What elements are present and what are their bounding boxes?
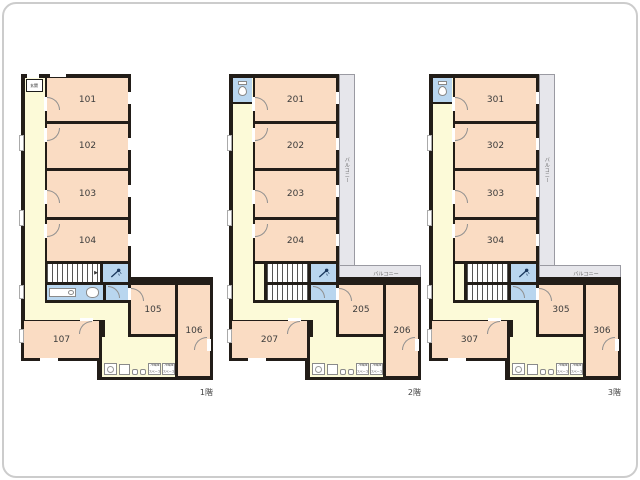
balcony-door-gap [336, 234, 339, 246]
window [227, 285, 232, 299]
floor-plan-2f: バルコニー バルコニー 201 202 203 204 207 [226, 73, 426, 403]
corridor [433, 78, 453, 320]
toilet-room [233, 78, 252, 104]
floor-plan-1f: 玄関 101 102 103 104 ▶ 107 105 106 [18, 73, 218, 403]
room-206: 206 [386, 285, 418, 376]
toilet-room [433, 78, 452, 104]
balcony-door-gap [536, 138, 539, 150]
corridor [433, 303, 536, 320]
burner-icon [540, 369, 546, 375]
window [19, 210, 24, 226]
fridge-space-label: 冷蔵庫スペース [556, 363, 569, 375]
entrance-box: 玄関 [26, 79, 43, 92]
corridor [233, 78, 253, 320]
floor-label: 1階 [168, 387, 213, 398]
burner-icon [348, 369, 354, 375]
shower-room [103, 264, 128, 282]
toilet-icon [86, 287, 99, 298]
door-gap [615, 339, 619, 351]
room-number: 206 [386, 285, 418, 376]
room-number: 303 [455, 171, 536, 217]
fridge-space-label: 冷蔵庫スペース [356, 363, 369, 375]
stairs-up [267, 264, 308, 282]
stair-landing [455, 264, 464, 300]
stairs: ▶ [47, 264, 100, 282]
kitchen-sink-icon [527, 364, 538, 375]
room-203: 203 [255, 171, 336, 217]
room-number: 106 [178, 285, 210, 376]
window [19, 135, 24, 151]
burner-icon [548, 369, 554, 375]
stairs-down [267, 285, 308, 300]
window [227, 210, 232, 226]
fridge-space-label: 冷蔵庫スペース [162, 363, 175, 375]
window [50, 74, 66, 77]
stair-landing [255, 264, 264, 300]
room-201: 201 [255, 78, 336, 121]
window [128, 234, 131, 246]
corridor [233, 303, 336, 320]
balcony-door-gap [336, 138, 339, 150]
window [19, 329, 24, 343]
corridor [313, 320, 336, 337]
burner-icon [132, 369, 138, 375]
door-gap [415, 339, 419, 351]
room-number: 306 [586, 285, 618, 376]
fridge-space-label: 冷蔵庫スペース [570, 363, 583, 375]
room-number: 203 [255, 171, 336, 217]
window [19, 285, 24, 299]
window [128, 92, 131, 104]
room-number: 201 [255, 78, 336, 121]
balcony-label: バルコニー [543, 157, 551, 183]
window [128, 185, 131, 197]
sink-icon [68, 290, 74, 295]
corridor [25, 303, 128, 320]
window [427, 210, 432, 226]
door-gap [207, 339, 211, 351]
washing-machine-icon [104, 363, 117, 375]
window [128, 138, 131, 150]
fridge-space-label: 冷蔵庫スペース [370, 363, 383, 375]
toilet-icon [233, 81, 252, 96]
window [227, 329, 232, 343]
floor-plan-3f: バルコニー バルコニー 301 302 303 304 307 [426, 73, 626, 403]
balcony-door-gap [536, 185, 539, 197]
entrance-label: 玄関 [31, 83, 39, 89]
shower-icon [311, 264, 336, 282]
corridor [513, 320, 536, 337]
stairs-up [467, 264, 508, 282]
shower-room [311, 264, 336, 282]
room-number: 101 [47, 78, 128, 121]
balcony-door-gap [336, 185, 339, 197]
corridor [105, 320, 128, 337]
burner-icon [340, 369, 346, 375]
window [227, 135, 232, 151]
balcony-door-gap [536, 234, 539, 246]
shower-icon [511, 264, 536, 282]
balcony-door-gap [536, 92, 539, 104]
floor-label: 2階 [376, 387, 421, 398]
room-101: 101 [47, 78, 128, 121]
kitchen-sink-icon [119, 364, 130, 375]
window [427, 329, 432, 343]
stairs-down [467, 285, 508, 300]
room-106: 106 [178, 285, 210, 376]
toilet-icon [433, 81, 452, 96]
shower-room [511, 264, 536, 282]
window [248, 358, 266, 361]
room-303: 303 [455, 171, 536, 217]
room-306: 306 [586, 285, 618, 376]
window [448, 358, 466, 361]
corridor [25, 78, 45, 320]
kitchen-sink-icon [327, 364, 338, 375]
room-number: 301 [455, 78, 536, 121]
floor-label: 3階 [576, 387, 621, 398]
washing-machine-icon [312, 363, 325, 375]
window [427, 135, 432, 151]
window [40, 358, 58, 361]
room-103: 103 [47, 171, 128, 217]
washing-machine-icon [512, 363, 525, 375]
room-number: 103 [47, 171, 128, 217]
window [427, 285, 432, 299]
shower-icon [103, 264, 128, 282]
stairs-arrow-icon: ▶ [94, 270, 98, 276]
floorplan-image: 玄関 101 102 103 104 ▶ 107 105 106 [0, 0, 640, 480]
balcony-door-gap [336, 92, 339, 104]
burner-icon [140, 369, 146, 375]
fridge-space-label: 冷蔵庫スペース [148, 363, 161, 375]
entrance-door-gap [27, 74, 39, 78]
balcony-label: バルコニー [343, 157, 351, 183]
room-301: 301 [455, 78, 536, 121]
